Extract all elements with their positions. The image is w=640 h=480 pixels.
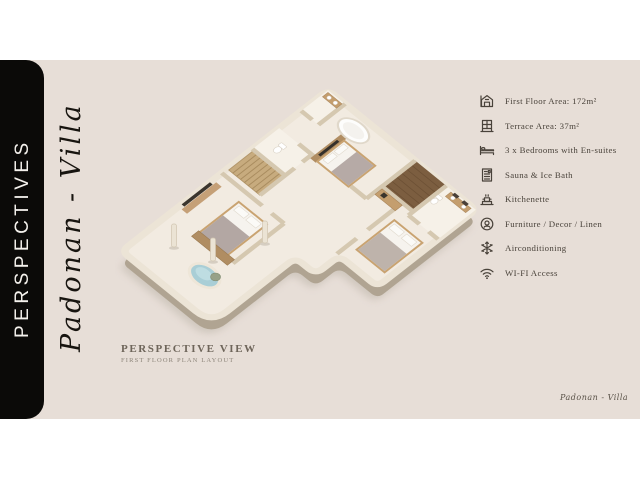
- bed-icon: [479, 142, 495, 158]
- feature-row-terrace-area: Terrace Area: 37m²: [479, 118, 617, 134]
- feature-label: Terrace Area: 37m²: [505, 121, 579, 131]
- sauna-icon: [479, 167, 495, 183]
- feature-row-wifi: WI-FI Access: [479, 265, 617, 281]
- feature-row-first-floor-area: First Floor Area: 172m²: [479, 93, 617, 109]
- feature-row-airconditioning: Airconditioning: [479, 240, 617, 256]
- snowflake-icon: [479, 240, 495, 256]
- villa-name-vertical: Padonan - Villa: [56, 102, 87, 352]
- feature-label: Furniture / Decor / Linen: [505, 219, 602, 229]
- feature-label: Sauna & Ice Bath: [505, 170, 573, 180]
- sidebar-vertical-title: PERSPECTIVES: [12, 138, 34, 338]
- wifi-icon: [479, 265, 495, 281]
- terrace-icon: [479, 118, 495, 134]
- caption-title: PERSPECTIVE VIEW: [121, 343, 257, 355]
- feature-row-kitchenette: Kitchenette: [479, 191, 617, 207]
- brochure-slide: PERSPECTIVES Padonan - Villa: [0, 60, 640, 419]
- plan-floor-group: [122, 90, 476, 355]
- feature-row-furniture: Furniture / Decor / Linen: [479, 216, 617, 232]
- features-list: First Floor Area: 172m² Terrace Area: 37…: [479, 93, 617, 289]
- floor-plan-illustration: [115, 63, 483, 355]
- feature-label: 3 x Bedrooms with En-suites: [505, 145, 617, 155]
- kitchenette-icon: [479, 191, 495, 207]
- feature-label: Airconditioning: [505, 243, 566, 253]
- feature-row-sauna: Sauna & Ice Bath: [479, 167, 617, 183]
- furniture-icon: [479, 216, 495, 232]
- footer-signature: Padonan - Villa: [560, 393, 628, 402]
- house-icon: [479, 93, 495, 109]
- plan-caption: PERSPECTIVE VIEW FIRST FLOOR PLAN LAYOUT: [121, 343, 257, 364]
- feature-label: WI-FI Access: [505, 268, 558, 278]
- feature-label: Kitchenette: [505, 194, 549, 204]
- caption-subtitle: FIRST FLOOR PLAN LAYOUT: [121, 357, 257, 364]
- feature-row-bedrooms: 3 x Bedrooms with En-suites: [479, 142, 617, 158]
- feature-label: First Floor Area: 172m²: [505, 96, 597, 106]
